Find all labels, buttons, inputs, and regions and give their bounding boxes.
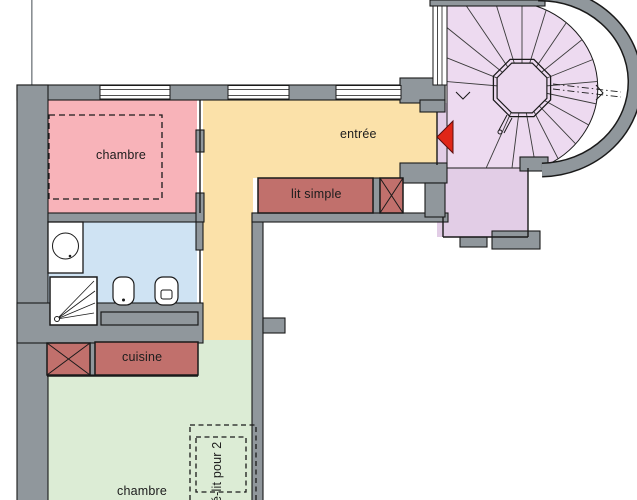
window-1 [100,86,170,100]
void-area-2 [437,249,547,500]
wall-stair-top [430,0,545,6]
label-single-bed: lit simple [291,187,342,201]
window-3 [336,86,401,100]
wall-pier-mid [400,163,447,183]
label-kitchen: cuisine [122,350,162,364]
floor-plan: chambre entrée lit simple cuisine chambr… [0,0,637,500]
wall-bed-gap [373,178,380,213]
wall-pier-small [263,318,285,333]
wall-void-top [252,213,448,222]
stairwell [417,0,627,237]
boundary-line [31,0,33,86]
wall-pier-top-notch [420,100,445,112]
toilet-bowl [161,290,172,299]
wall-landing-stub-2 [492,231,540,249]
washbasin-icon [53,233,79,259]
floor-plan-drawing [0,0,637,500]
corridor-floor [203,178,253,343]
label-bedroom-bottom: chambre [117,484,167,498]
label-sofa-bed: é-lit pour 2 [210,442,224,500]
label-bedroom-top: chambre [96,148,146,162]
newel-inner [497,63,547,113]
windows [100,6,447,99]
wall-left [17,85,48,500]
washbasin-drain [69,255,72,258]
window-2 [228,86,289,100]
label-entry-hall: entrée [340,127,377,141]
bidet-drain [122,299,125,302]
wall-stub-3 [196,222,203,250]
wall-pier-mid-notch [425,183,445,217]
handrail-foot [498,130,502,134]
window-stair [433,6,447,85]
wall-right-of-corridor [252,213,263,500]
wall-bedroom-bathroom [48,213,203,222]
bathroom-counter [101,312,198,325]
shower-drain [55,317,60,322]
wall-landing-stub-1 [460,237,487,247]
void-area [258,222,437,500]
